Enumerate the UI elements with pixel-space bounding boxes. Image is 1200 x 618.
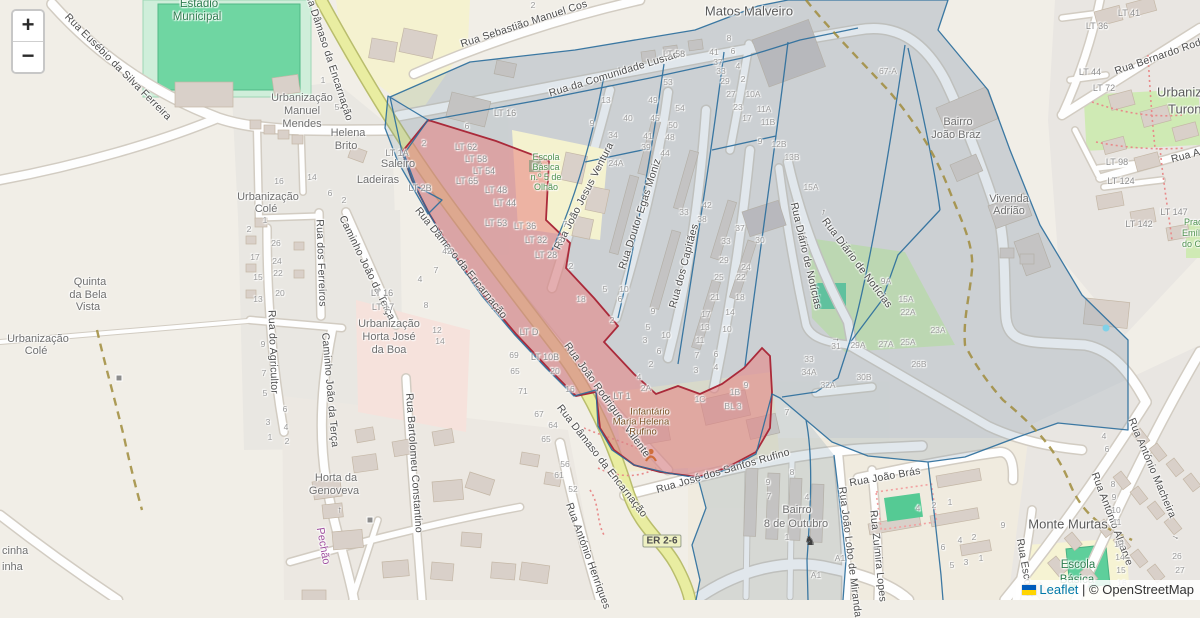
zoom-control: + − xyxy=(11,9,45,74)
ukraine-flag-icon xyxy=(1022,585,1036,595)
zoom-out-button[interactable]: − xyxy=(13,42,43,72)
map-canvas[interactable] xyxy=(0,0,1200,600)
marker-icon xyxy=(367,517,373,523)
green-square xyxy=(884,493,923,522)
marker-icon xyxy=(116,375,122,381)
pool-icon xyxy=(1103,325,1110,332)
attribution-separator: | xyxy=(1078,582,1089,597)
zoom-in-button[interactable]: + xyxy=(13,11,43,42)
leaflet-link[interactable]: Leaflet xyxy=(1039,582,1078,597)
attribution-bar: Leaflet | © OpenStreetMap xyxy=(1016,580,1200,600)
leaflet-map[interactable]: { "zoom_control": {"in": "+", "out": "−"… xyxy=(0,0,1200,600)
osm-credit: © OpenStreetMap xyxy=(1089,582,1194,597)
